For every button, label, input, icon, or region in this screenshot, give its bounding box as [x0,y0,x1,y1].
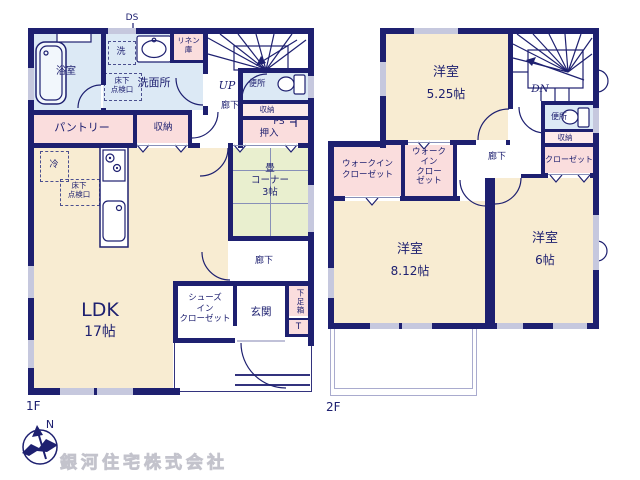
label-tatami: 畳 コーナー 3帖 [243,163,297,199]
door-arcs [78,70,608,388]
wall-segment [298,143,314,148]
label-pantry: パントリー [45,121,119,135]
label-western525: 洋室 [420,65,472,81]
label-western6: 洋室 [519,231,571,247]
wall-segment [328,141,334,329]
label-western812-size: 8.12帖 [380,264,440,279]
window-segment [414,28,458,34]
wall-segment [228,236,314,241]
window-segment [108,28,136,34]
compass-north-label: N [42,418,58,432]
wall-segment [545,129,593,132]
wall-segment [228,143,233,238]
wall-segment [285,284,289,334]
wall-segment [34,110,192,115]
divider-line [548,174,590,175]
wall-segment [170,60,203,63]
wall-segment [453,140,457,201]
wall-segment [173,281,314,286]
wall-segment [203,28,208,74]
window-segment [28,340,34,368]
window-segment [28,68,34,100]
divider-line [137,145,188,146]
wall-segment [541,143,593,147]
wall-segment [380,28,599,34]
label-ldk-size: 17帖 [76,324,124,342]
label-storage-mid: 収納 [146,122,180,134]
wall-segment [506,140,510,145]
floor-plan-canvas: DS 浴室 洗 洗面所 リネン 庫 床下 点検口 UP 廊下 便所 収納 PS … [0,0,640,480]
window-segment [308,185,314,232]
wall-segment [399,323,402,329]
wall-segment [233,286,237,326]
floor1-label: 1F [26,399,52,414]
label-shoes-closet: シューズ イン クローゼット [177,293,233,325]
wall-segment [485,178,495,323]
window-segment [380,62,386,96]
wall-segment [94,388,97,395]
label-wic-right: ウォーク イン クロー ゼット [407,148,451,187]
label-hall-1f-lower: 廊下 [249,256,279,267]
label-laundry: 洗 [109,47,133,58]
wall-segment [238,68,243,148]
toilet-icon-1f [278,75,305,94]
label-dn: DN [527,83,553,96]
wall-segment [400,196,460,201]
wall-segment [173,338,235,343]
wall-segment [541,101,593,105]
label-bathroom: 浴室 [44,66,88,79]
wall-segment [541,173,548,178]
wall-segment [285,334,308,337]
kitchen-counter-icon [100,147,128,247]
wall-segment [203,106,208,115]
label-underfloor-ldk: 床下 点検口 [60,181,98,200]
label-toilet-1f: 便所 [244,79,270,90]
washbasin-icon [137,36,171,62]
window-segment [308,76,314,98]
wall-segment [243,116,308,120]
window-segment [28,266,34,298]
label-up: UP [215,79,239,93]
wall-segment [593,28,599,329]
wall-segment [238,68,308,73]
wall-segment [170,34,174,63]
wall-segment [521,174,541,178]
label-western812: 洋室 [384,242,436,258]
wall-segment [401,145,405,196]
label-toilet-storage-2f: 収納 [552,133,578,142]
label-hall-2f: 廊下 [482,152,512,163]
label-shoe-box: 下足箱 [293,289,305,315]
window-segment [593,215,599,270]
divider-line [345,197,400,198]
company-watermark: 銀河住宅株式会社 [60,448,228,473]
wall-segment [34,143,137,148]
divider-line [233,145,298,146]
label-shoe-box-t: T [291,322,306,333]
label-wic-left: ウォークイン クローゼット [336,159,399,180]
wall-segment [508,34,513,109]
floor2-label: 2F [326,400,354,415]
wall-segment [101,34,106,85]
wall-segment [188,143,200,148]
label-linen: リネン 庫 [172,36,205,55]
window-segment [497,323,523,329]
window-segment [553,323,587,329]
wall-segment [328,196,345,201]
label-oshiire: 押入 [251,128,287,140]
wall-segment [541,101,545,177]
window-segment [328,268,334,298]
label-fridge: 冷 [44,160,64,171]
label-toilet-storage-1f: 収納 [252,105,282,114]
label-closet-2f: クローゼット [545,155,593,165]
label-underfloor-washroom: 床下 点検口 [104,76,140,95]
window-segment [593,108,599,133]
divider-line [408,142,450,143]
wall-segment [328,141,385,147]
label-entrance: 玄関 [243,306,279,319]
wall-segment [590,173,593,178]
wall-segment [243,100,308,104]
label-western525-size: 5.25帖 [418,87,474,102]
label-toilet-2f: 便所 [547,112,571,122]
stairs-1f [208,34,306,70]
label-ldk: LDK [72,299,128,323]
wall-segment [173,281,178,343]
ds-label: DS [118,13,146,24]
label-western6-size: 6帖 [523,253,567,268]
